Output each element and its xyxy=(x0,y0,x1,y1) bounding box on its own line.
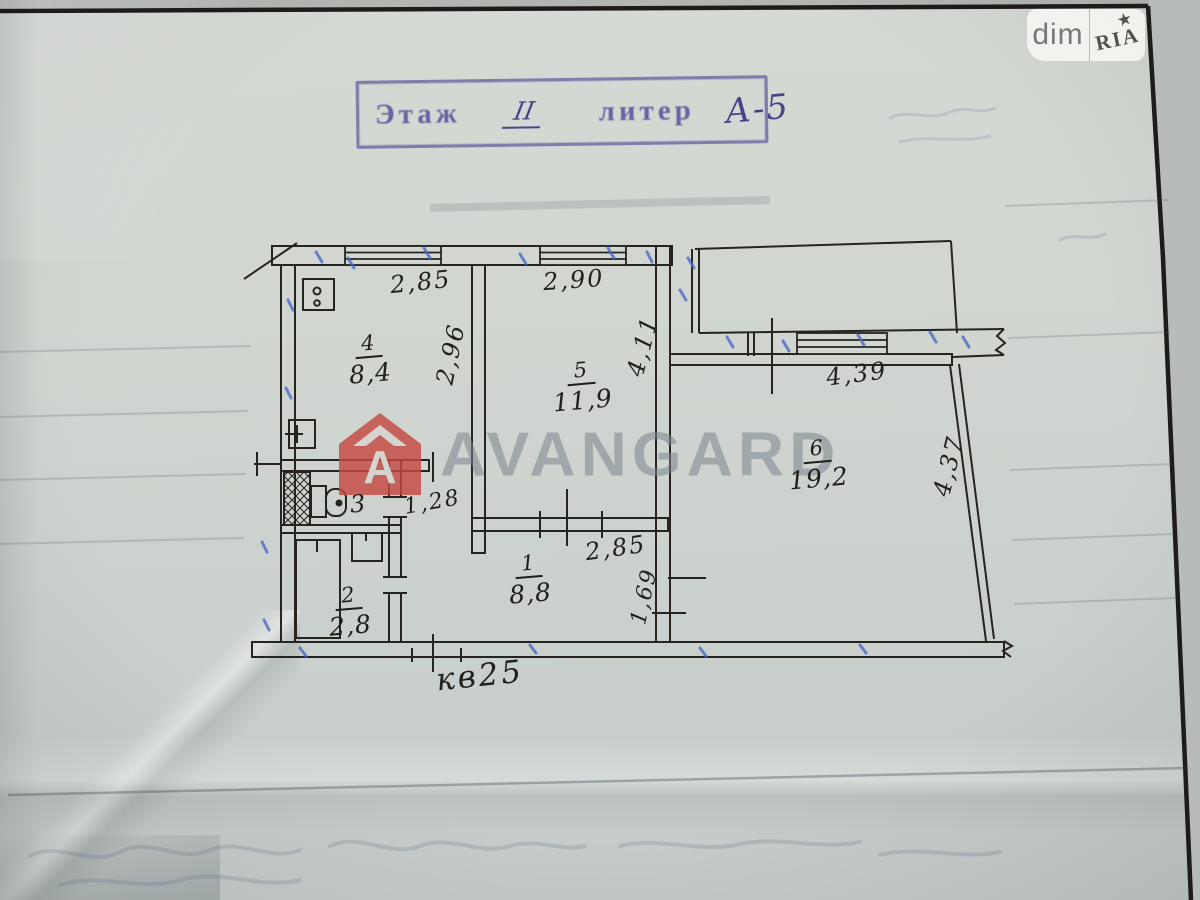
room-1-area: 8,8 xyxy=(508,576,553,611)
wash-basin xyxy=(352,533,382,561)
avangard-logo-icon: A xyxy=(336,410,424,498)
room-4-area: 8,4 xyxy=(348,356,393,391)
wall-bath-right xyxy=(389,593,401,642)
room-6-number: 6 xyxy=(802,437,831,464)
room-6-area: 19,2 xyxy=(788,460,850,496)
room-4-label: 4 8,4 xyxy=(346,331,394,391)
room-5-number: 5 xyxy=(566,359,595,386)
wall-room6-right-outer xyxy=(950,365,986,641)
watermark-logo-letter: A xyxy=(336,444,424,490)
stove xyxy=(303,279,334,310)
room-1-label: 1 8,8 xyxy=(506,551,554,611)
wall-bottom xyxy=(252,642,1004,657)
scanned-floor-plan-photo: A AVANGARD Этаж II литер А-5 dim RIA ★ 4… xyxy=(0,0,1200,900)
stamp-liter-value: А-5 xyxy=(723,87,791,132)
watermark: A AVANGARD xyxy=(336,406,840,502)
wall-corner-diagonal xyxy=(244,243,297,279)
kitchen-sink xyxy=(285,420,315,448)
room-5-area: 11,9 xyxy=(552,382,614,418)
room-2-label: 2 2,8 xyxy=(326,583,374,643)
wall-break-balcony xyxy=(996,329,1005,355)
wall-room6-top xyxy=(670,354,952,365)
wall-room5-hall xyxy=(472,518,668,531)
stamp-liter-label: литер xyxy=(598,94,695,128)
room-3-label: 3 xyxy=(349,489,367,518)
stamp-floor-value: II xyxy=(502,96,546,129)
room-3-number: 3 xyxy=(349,489,367,518)
watermark-brand-text: AVANGARD xyxy=(440,418,840,490)
room-1-number: 1 xyxy=(513,552,542,579)
dim-width-room5: 2,90 xyxy=(542,264,605,296)
floor-stamp: Этаж II литер А-5 xyxy=(356,75,769,149)
wall-wc-bottom xyxy=(281,525,401,533)
room-4-number: 4 xyxy=(353,332,382,359)
window-room6-balcony xyxy=(797,333,887,354)
dim-ria-badge: dim RIA ★ xyxy=(1027,9,1145,61)
room-5-label: 5 11,9 xyxy=(550,358,614,419)
wall-left xyxy=(281,265,295,642)
room-6-label: 6 19,2 xyxy=(786,436,850,497)
wall-room6-right-inner xyxy=(959,364,994,639)
window-kitchen xyxy=(345,246,441,265)
dim-logo: dim xyxy=(1027,18,1089,52)
windows xyxy=(345,246,887,354)
vent-shaft xyxy=(284,472,310,525)
room-2-area: 2,8 xyxy=(328,608,373,643)
room-2-number: 2 xyxy=(333,584,362,611)
stamp-floor-label: Этаж xyxy=(375,97,461,131)
